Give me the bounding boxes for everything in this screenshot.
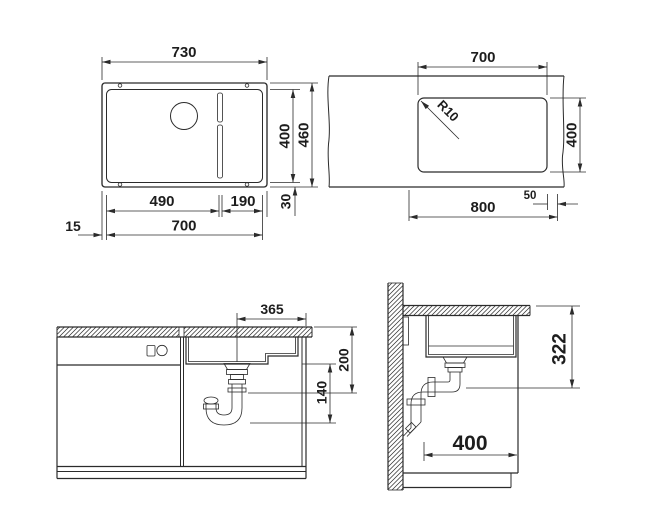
- drain-and-pipes-side: [404, 357, 468, 437]
- countertop-section: [57, 327, 312, 337]
- sink-installation-diagram: 730 400 460 30 490: [0, 0, 648, 530]
- dim-label-322: 322: [550, 333, 571, 365]
- dim-label-200: 200: [336, 348, 352, 372]
- fixing-point: [245, 183, 249, 187]
- dim-label-490: 490: [149, 193, 174, 210]
- dim-overall-width-730: 730: [102, 44, 267, 80]
- cabinet-side-view: 322 400: [388, 283, 580, 490]
- wall-batten: [403, 317, 409, 345]
- dim-label-730: 730: [171, 44, 196, 61]
- drain-hole: [171, 103, 198, 130]
- dim-label-50: 50: [524, 190, 537, 202]
- dim-depths-400-460-30: 400 460 30: [270, 83, 318, 216]
- dim-clearance-50-800: 50 800: [409, 190, 578, 221]
- handle-symbol: [147, 346, 155, 357]
- technical-drawing-page: 730 400 460 30 490: [0, 0, 648, 530]
- dim-mount-height-322: 322: [466, 306, 580, 388]
- bowl-section-side: [426, 316, 516, 357]
- cabinet-outline-side: [403, 316, 518, 488]
- rail-slot-lower: [218, 125, 223, 178]
- dim-label-30: 30: [278, 194, 294, 210]
- dim-label-460: 460: [296, 122, 313, 147]
- dim-label-400-side: 400: [452, 432, 487, 455]
- cabinets-outline: [57, 337, 306, 479]
- dim-label-400-inner: 400: [277, 123, 294, 148]
- countertop-outline: [328, 76, 564, 187]
- fixing-point: [118, 84, 122, 88]
- dim-cutout-depth-400: 400: [550, 98, 586, 172]
- dim-label-140: 140: [314, 381, 330, 405]
- pipe-inner: [421, 372, 450, 422]
- dim-label-365: 365: [260, 301, 284, 317]
- trap-inner: [216, 390, 232, 415]
- countertop-section-side: [403, 306, 530, 316]
- fixing-point: [245, 84, 249, 88]
- dim-cutout-width-700: 700: [418, 49, 547, 95]
- dim-label-190: 190: [230, 193, 255, 210]
- knob-symbol: [157, 345, 167, 355]
- dim-label-r10: R10: [434, 97, 461, 124]
- fixing-point: [118, 183, 122, 187]
- dim-label-700-bottom: 700: [171, 218, 196, 235]
- strainer-flange-side: [443, 357, 467, 363]
- trap-cap: [204, 397, 218, 404]
- sink-outline: [102, 83, 267, 187]
- dim-label-400-cutout: 400: [564, 122, 581, 147]
- pipe-outer: [411, 372, 460, 428]
- dim-label-700-cutout: 700: [470, 49, 495, 66]
- dim-wall-clearance-400: 400: [424, 432, 517, 461]
- dim-label-15: 15: [65, 218, 81, 234]
- dim-widths-490-190-700-15: 490 190 700 15: [65, 191, 267, 240]
- trap-outer: [206, 390, 242, 425]
- rail-slot-upper: [218, 93, 223, 122]
- break-line-left: [328, 76, 330, 187]
- cabinet-front-view: 365 200 140: [57, 301, 357, 479]
- drain-and-trap-front: [204, 364, 251, 426]
- dim-label-800: 800: [470, 199, 495, 216]
- sink-top-view: 730 400 460 30 490: [65, 44, 318, 240]
- dim-corner-radius-r10: R10: [421, 97, 462, 139]
- countertop-cutout-view: 700 R10 400 50 800: [328, 49, 586, 221]
- bowl-section-front: [186, 338, 298, 365]
